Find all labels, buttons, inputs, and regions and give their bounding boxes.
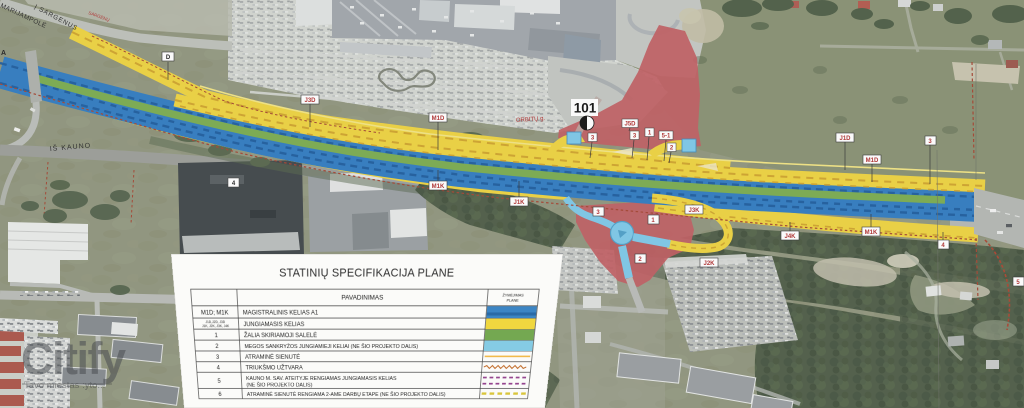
svg-text:KAUNO M. SAV. ATEITYJE RENGIAM: KAUNO M. SAV. ATEITYJE RENGIAMAS JUNGIAM… [246,376,397,382]
svg-text:MAGISTRALINIS KELIAS A1: MAGISTRALINIS KELIAS A1 [243,310,319,316]
svg-text:2: 2 [215,344,219,350]
svg-text:JUNGIAMASIS KELIAS: JUNGIAMASIS KELIAS [243,322,305,328]
svg-text:3: 3 [216,354,220,360]
svg-text:ATRAMINĖ SIENUTĖ: ATRAMINĖ SIENUTĖ [245,353,301,361]
svg-text:4: 4 [217,365,221,371]
svg-text:MEGOS SANKRYŽOS JUNGIAMIEJI KE: MEGOS SANKRYŽOS JUNGIAMIEJI KELIAI (NE Š… [244,343,418,350]
svg-text:PLANE: PLANE [506,298,519,303]
svg-text:6: 6 [218,392,222,398]
svg-text:J1K, J2K, J3K, J4K: J1K, J2K, J3K, J4K [202,324,230,328]
svg-text:(NE ŠIO PROJEKTO DALIS): (NE ŠIO PROJEKTO DALIS) [246,382,312,388]
svg-text:PAVADINIMAS: PAVADINIMAS [341,293,383,301]
svg-text:ŽALIA SKIRIAMOJI SALELĖ: ŽALIA SKIRIAMOJI SALELĖ [244,331,318,339]
svg-text:ATRAMINĖ SIENUTĖ RENGIAMA 2-AM: ATRAMINĖ SIENUTĖ RENGIAMA 2-AME DARBŲ ET… [247,392,446,398]
svg-text:5: 5 [217,379,221,385]
svg-text:TRIUKŠMO UŽTVARA: TRIUKŠMO UŽTVARA [245,363,303,371]
svg-text:M1D; M1K: M1D; M1K [201,310,229,316]
svg-text:STATINIŲ SPECIFIKACIJA PLANE: STATINIŲ SPECIFIKACIJA PLANE [279,266,455,279]
svg-text:ŽYMĖJIMAS: ŽYMĖJIMAS [502,293,524,298]
svg-text:1: 1 [214,333,218,339]
